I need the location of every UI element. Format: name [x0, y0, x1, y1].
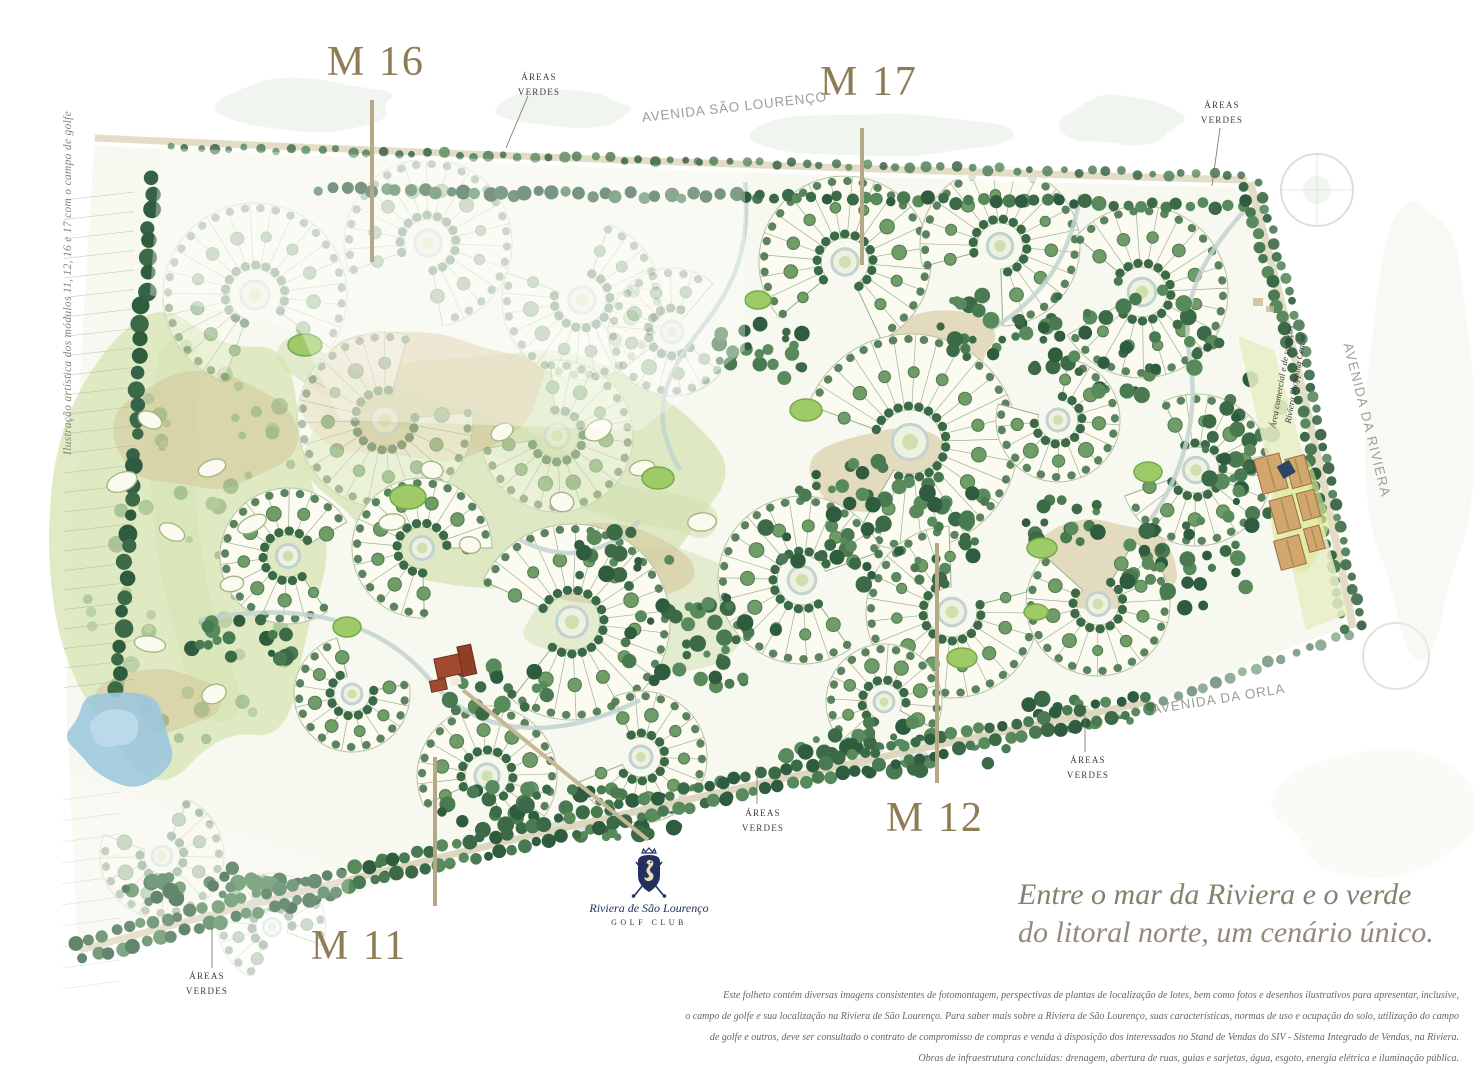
green-areas-label-line1: ÁREAS	[518, 70, 560, 85]
brochure-page: M 16 M 17 M 12 M 11 ÁREAS VERDES ÁREAS V…	[0, 0, 1473, 1080]
green-areas-label: ÁREAS VERDES	[742, 806, 784, 837]
disclaimer-line: Obras de infraestrutura concluídas: dren…	[685, 1048, 1459, 1069]
green-areas-label: ÁREAS VERDES	[1201, 98, 1243, 129]
green-areas-label-line1: ÁREAS	[186, 969, 228, 984]
green-areas-label: ÁREAS VERDES	[1067, 753, 1109, 784]
module-label-m11: M 11	[311, 922, 407, 970]
green-areas-label-line2: VERDES	[518, 85, 560, 100]
tagline-line2: do litoral norte, um cenário único.	[1018, 914, 1438, 952]
golf-club-name: Riviera de São Lourenço	[529, 901, 769, 916]
disclaimer-line: o campo de golfe e sua localização na Ri…	[685, 1006, 1459, 1027]
green-areas-label-line2: VERDES	[186, 984, 228, 999]
module-label-m12: M 12	[886, 794, 984, 842]
disclaimer-line: de golfe e outros, deve ser consultado o…	[685, 1027, 1459, 1048]
module-label-m17: M 17	[820, 58, 918, 106]
illustration-caption: Ilustração artística dos módulos 11, 12,…	[62, 111, 74, 455]
legal-disclaimer: Este folheto contém diversas imagens con…	[685, 985, 1459, 1069]
disclaimer-line: Este folheto contém diversas imagens con…	[685, 985, 1459, 1006]
module-label-m16: M 16	[327, 38, 425, 86]
green-areas-label: ÁREAS VERDES	[518, 70, 560, 101]
marketing-tagline: Entre o mar da Riviera e o verde do lito…	[1018, 876, 1438, 952]
golf-club-crest-icon	[628, 846, 670, 898]
green-areas-label-line1: ÁREAS	[742, 806, 784, 821]
tagline-line1: Entre o mar da Riviera e o verde	[1018, 876, 1438, 914]
green-areas-label-line1: ÁREAS	[1067, 753, 1109, 768]
green-areas-label-line2: VERDES	[1067, 768, 1109, 783]
golf-club-subtitle: GOLF CLUB	[529, 918, 769, 927]
green-areas-label-line1: ÁREAS	[1201, 98, 1243, 113]
golf-club-logo: Riviera de São Lourenço GOLF CLUB	[529, 846, 769, 927]
green-areas-label: ÁREAS VERDES	[186, 969, 228, 1000]
green-areas-label-line2: VERDES	[742, 821, 784, 836]
green-areas-label-line2: VERDES	[1201, 113, 1243, 128]
